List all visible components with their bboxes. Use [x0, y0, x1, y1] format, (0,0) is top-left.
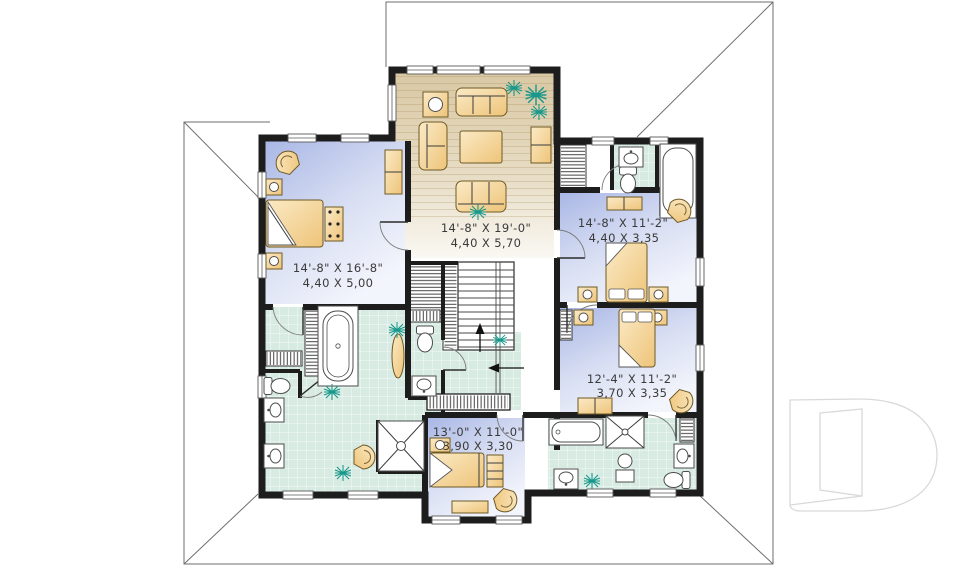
family-room-dim-metric: 4,40 X 5,70 [451, 236, 522, 250]
sink [674, 444, 694, 468]
window [650, 489, 676, 497]
plant [493, 333, 507, 347]
toilet [264, 378, 290, 395]
bed [619, 309, 655, 367]
vanity-chair [354, 445, 375, 469]
window [407, 66, 433, 74]
window [258, 172, 266, 198]
toilet [664, 472, 690, 489]
games-table [325, 207, 343, 241]
nightstand [574, 310, 593, 325]
plant [335, 465, 351, 481]
window [341, 134, 369, 142]
stair-railing [427, 394, 510, 410]
sink [619, 147, 643, 167]
garden-bathtub [318, 306, 358, 386]
bedroom-bottom-dim-metric: 3,90 X 3,30 [443, 439, 514, 453]
sink [412, 376, 436, 396]
bedroom-upper-right-closet [560, 145, 586, 189]
window [283, 491, 313, 499]
plant [470, 204, 486, 220]
bedroom-lower-right-dim-metric: 3,70 X 3,35 [597, 386, 668, 400]
toilet [417, 326, 434, 352]
window [432, 516, 460, 524]
bedroom-lower-right-dim-imperial: 12'-4" X 11'-2" [587, 372, 677, 386]
sink [264, 398, 284, 422]
shower [606, 416, 644, 448]
lower-bath-linen [680, 418, 694, 442]
bedroom-upper-right-dim-imperial: 14'-8" X 11'-2" [578, 216, 668, 230]
window [592, 137, 614, 145]
window [696, 345, 704, 371]
chest-of-drawers [487, 455, 503, 487]
dresser [578, 398, 612, 414]
master-bedroom-dim-metric: 4,40 X 5,00 [303, 276, 374, 290]
window [437, 66, 480, 74]
window [587, 489, 613, 497]
bedroom-upper-right-dim-metric: 4,40 X 3,35 [589, 231, 660, 245]
bed [430, 453, 484, 487]
plant [324, 384, 340, 400]
bathtub [549, 419, 603, 445]
window [696, 258, 704, 286]
window [348, 491, 378, 499]
family-room-dim-imperial: 14'-8" X 19'-0" [441, 221, 531, 235]
window [388, 85, 396, 121]
sink [554, 469, 578, 489]
bed [266, 200, 323, 247]
bedroom-bottom-dim-imperial: 13'-0" X 11'-0" [433, 425, 523, 439]
nightstand [649, 287, 668, 302]
bed [606, 243, 647, 302]
dresser [607, 197, 642, 210]
window [258, 254, 266, 278]
dresser [385, 150, 402, 194]
toilet [620, 167, 637, 193]
plant [389, 322, 405, 338]
plant [584, 473, 600, 489]
master-bedroom-dim-imperial: 14'-8" X 16'-8" [293, 261, 383, 275]
nightstand [266, 253, 282, 269]
bench [452, 501, 488, 513]
side-table-with-lamp [423, 92, 448, 117]
potted-palm [392, 334, 404, 378]
console-table [531, 127, 551, 163]
window [288, 134, 316, 142]
loveseat [419, 122, 447, 170]
sofa [456, 88, 507, 116]
floor-plan-drawing: 14'-8" X 19'-0" 4,40 X 5,70 14'-8" X 16'… [0, 0, 960, 569]
plant [526, 85, 547, 106]
nightstand [266, 179, 282, 195]
builder-logo-d-icon [790, 399, 937, 511]
plant [506, 80, 522, 96]
nightstand [578, 287, 597, 302]
window [496, 516, 522, 524]
window [484, 66, 530, 74]
bedroom-lower-right-closet [560, 310, 572, 340]
sofa [456, 181, 506, 212]
coffee-table [460, 131, 502, 163]
plant [531, 104, 547, 120]
shower [378, 421, 424, 471]
floor-plan-page: 14'-8" X 19'-0" 4,40 X 5,70 14'-8" X 16'… [0, 0, 960, 569]
master-bath-closet-a [266, 351, 302, 366]
stair-side-closet [443, 263, 458, 350]
wc-linen-shelf [410, 310, 440, 322]
sink [264, 444, 284, 468]
